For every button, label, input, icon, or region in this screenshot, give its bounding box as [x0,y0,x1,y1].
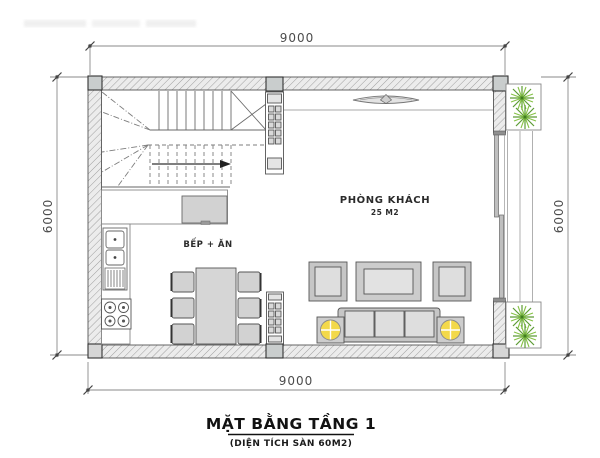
dimension-bottom-label: 9000 [279,374,314,388]
dimension-bottom: 9000 [84,362,510,395]
plan-title: MẶT BẰNG TẦNG 1 [206,412,376,433]
kitchen-label: BẾP + ĂN [183,237,232,250]
dimension-left-label: 6000 [41,199,55,234]
dimension-left: 6000 [41,73,88,360]
dining-table [196,268,236,344]
plant-icon [513,105,537,129]
living-room-label: PHÒNG KHÁCH [340,193,430,206]
column [266,77,283,91]
sofa [338,308,440,342]
stove [102,299,132,329]
column [266,344,283,358]
armchair-right [433,262,471,301]
dining-chair [238,272,260,292]
side-table-right [437,317,464,343]
coffee-table [356,262,421,301]
column [88,76,102,90]
title-block: MẶT BẰNG TẦNG 1 (DIỆN TÍCH SÀN 60M2) [206,412,376,449]
refrigerator-handle [201,221,210,225]
divider-cabinet-upper [266,92,284,174]
wall-top [102,77,494,90]
dining-chair [172,272,194,292]
plant-icon [510,86,534,110]
ceiling-light-icon [353,95,419,104]
plan-subtitle: (DIỆN TÍCH SÀN 60M2) [230,437,352,449]
refrigerator [182,196,227,223]
dining-chair [172,298,194,318]
wall-right-upper [494,90,506,133]
dining-chair [238,298,260,318]
living-room: PHÒNG KHÁCH 25 M2 [309,193,471,343]
dining-set [172,268,261,344]
living-room-area: 25 M2 [371,208,399,217]
plant-icon [510,305,534,329]
floor-plan-page: 9000 9000 6000 6000 [0,0,600,458]
wall-left [88,90,102,344]
column [88,344,102,358]
stair-landing-diagonals [231,91,266,130]
wall-right-lower [494,301,506,345]
balcony [506,84,541,348]
dimension-right-label: 6000 [552,199,566,234]
watermark-smudge [24,20,196,27]
planter-box-top [506,84,541,130]
dining-chair [238,324,260,344]
staircase [102,91,267,187]
plant-icon [513,324,537,348]
stair-winder-lines [102,92,150,186]
armchair-left [309,262,347,301]
dimension-top: 9000 [86,31,510,75]
divider-cabinet-lower [267,292,284,344]
floor-plan-drawing: 9000 9000 6000 6000 [0,0,600,458]
wall-bottom [102,345,494,358]
stair-lower-treads [148,145,266,186]
sliding-door [494,131,506,302]
stair-arrow-icon [152,160,231,168]
dimension-top-label: 9000 [280,31,315,45]
planter-box-bottom [506,302,541,348]
dining-chair [172,324,194,344]
side-table-left [317,317,344,343]
